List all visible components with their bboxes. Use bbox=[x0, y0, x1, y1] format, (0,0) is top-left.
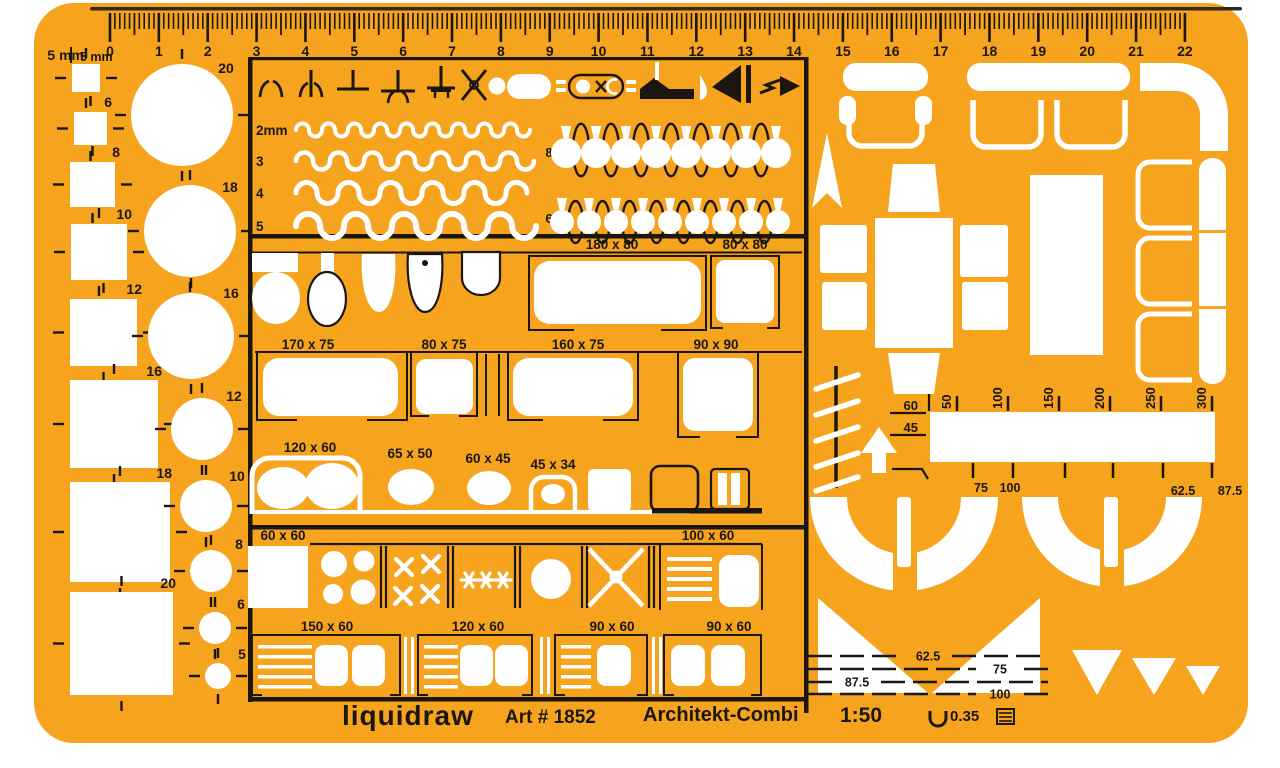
svg-text:3: 3 bbox=[253, 43, 261, 59]
svg-text:11: 11 bbox=[640, 43, 655, 59]
svg-text:150: 150 bbox=[1041, 387, 1056, 409]
svg-text:5: 5 bbox=[350, 43, 358, 59]
scale-ratio: 1:50 bbox=[840, 704, 882, 728]
svg-text:9: 9 bbox=[546, 43, 554, 59]
svg-text:2mm: 2mm bbox=[256, 123, 288, 138]
svg-text:60 x 45: 60 x 45 bbox=[465, 451, 511, 466]
svg-text:15: 15 bbox=[835, 43, 851, 59]
svg-text:8: 8 bbox=[497, 43, 505, 59]
svg-text:300: 300 bbox=[1194, 387, 1209, 409]
brand-logo: liquidraw bbox=[342, 700, 474, 732]
svg-text:4: 4 bbox=[256, 186, 264, 201]
stencil-template: 0123456789101112131415161718192021225 mm… bbox=[0, 0, 1280, 768]
product-name: Architekt-Combi bbox=[643, 704, 799, 727]
svg-text:20: 20 bbox=[160, 575, 176, 591]
svg-text:120 x 60: 120 x 60 bbox=[452, 619, 505, 634]
svg-text:18: 18 bbox=[156, 465, 172, 481]
svg-text:90 x 60: 90 x 60 bbox=[706, 619, 751, 634]
svg-text:12: 12 bbox=[126, 281, 142, 297]
svg-text:100 x 60: 100 x 60 bbox=[682, 528, 735, 543]
svg-text:62.5: 62.5 bbox=[1171, 484, 1195, 498]
svg-text:87.5: 87.5 bbox=[845, 676, 869, 690]
svg-text:7: 7 bbox=[448, 43, 456, 59]
svg-text:10: 10 bbox=[116, 206, 132, 222]
svg-text:8: 8 bbox=[112, 144, 120, 160]
svg-text:19: 19 bbox=[1031, 43, 1047, 59]
svg-text:6: 6 bbox=[104, 94, 112, 110]
svg-text:10: 10 bbox=[229, 468, 245, 484]
svg-text:10: 10 bbox=[591, 43, 607, 59]
svg-text:60: 60 bbox=[904, 398, 918, 413]
svg-text:100: 100 bbox=[990, 688, 1011, 702]
svg-text:75: 75 bbox=[974, 481, 988, 495]
svg-text:6: 6 bbox=[237, 596, 245, 612]
article-number: Art # 1852 bbox=[505, 707, 596, 729]
svg-text:2: 2 bbox=[204, 43, 212, 59]
svg-text:12: 12 bbox=[689, 43, 705, 59]
pen-width-value: 0.35 bbox=[950, 708, 979, 725]
svg-text:160 x 75: 160 x 75 bbox=[552, 337, 605, 352]
svg-text:20: 20 bbox=[218, 60, 234, 76]
svg-text:1: 1 bbox=[155, 43, 163, 59]
svg-text:100: 100 bbox=[1000, 481, 1021, 495]
svg-text:45: 45 bbox=[904, 420, 918, 435]
svg-text:4: 4 bbox=[302, 43, 310, 59]
svg-text:80 x 80: 80 x 80 bbox=[722, 237, 767, 252]
svg-text:21: 21 bbox=[1128, 43, 1144, 59]
svg-text:65 x 50: 65 x 50 bbox=[387, 446, 432, 461]
svg-text:22: 22 bbox=[1177, 43, 1193, 59]
svg-text:80 x 75: 80 x 75 bbox=[421, 337, 467, 352]
svg-text:90 x 60: 90 x 60 bbox=[589, 619, 634, 634]
svg-text:3: 3 bbox=[256, 154, 264, 169]
svg-text:5: 5 bbox=[238, 646, 246, 662]
svg-text:16: 16 bbox=[884, 43, 900, 59]
svg-text:87.5: 87.5 bbox=[1218, 484, 1242, 498]
svg-text:12: 12 bbox=[226, 388, 242, 404]
svg-text:14: 14 bbox=[786, 43, 802, 59]
svg-text:250: 250 bbox=[1143, 387, 1158, 409]
svg-text:200: 200 bbox=[1092, 387, 1107, 409]
svg-text:50: 50 bbox=[939, 395, 954, 409]
svg-text:5 mm: 5 mm bbox=[47, 47, 84, 63]
svg-text:16: 16 bbox=[223, 285, 239, 301]
svg-text:18: 18 bbox=[982, 43, 998, 59]
svg-text:17: 17 bbox=[933, 43, 949, 59]
svg-text:100: 100 bbox=[990, 387, 1005, 409]
svg-text:20: 20 bbox=[1079, 43, 1095, 59]
svg-text:13: 13 bbox=[737, 43, 753, 59]
svg-text:5: 5 bbox=[256, 219, 264, 234]
svg-text:75: 75 bbox=[993, 663, 1007, 677]
svg-text:60 x 60: 60 x 60 bbox=[260, 528, 305, 543]
svg-text:6: 6 bbox=[399, 43, 407, 59]
svg-text:18: 18 bbox=[222, 179, 238, 195]
svg-text:45 x 34: 45 x 34 bbox=[530, 457, 576, 472]
svg-text:62.5: 62.5 bbox=[916, 650, 940, 664]
svg-text:150 x 60: 150 x 60 bbox=[301, 619, 354, 634]
svg-text:180 x 80: 180 x 80 bbox=[586, 237, 639, 252]
svg-text:8: 8 bbox=[235, 536, 243, 552]
svg-text:170 x 75: 170 x 75 bbox=[282, 337, 335, 352]
stencil-product-image: 0123456789101112131415161718192021225 mm… bbox=[0, 0, 1280, 768]
svg-text:90 x 90: 90 x 90 bbox=[693, 337, 738, 352]
svg-text:120 x 60: 120 x 60 bbox=[284, 440, 337, 455]
